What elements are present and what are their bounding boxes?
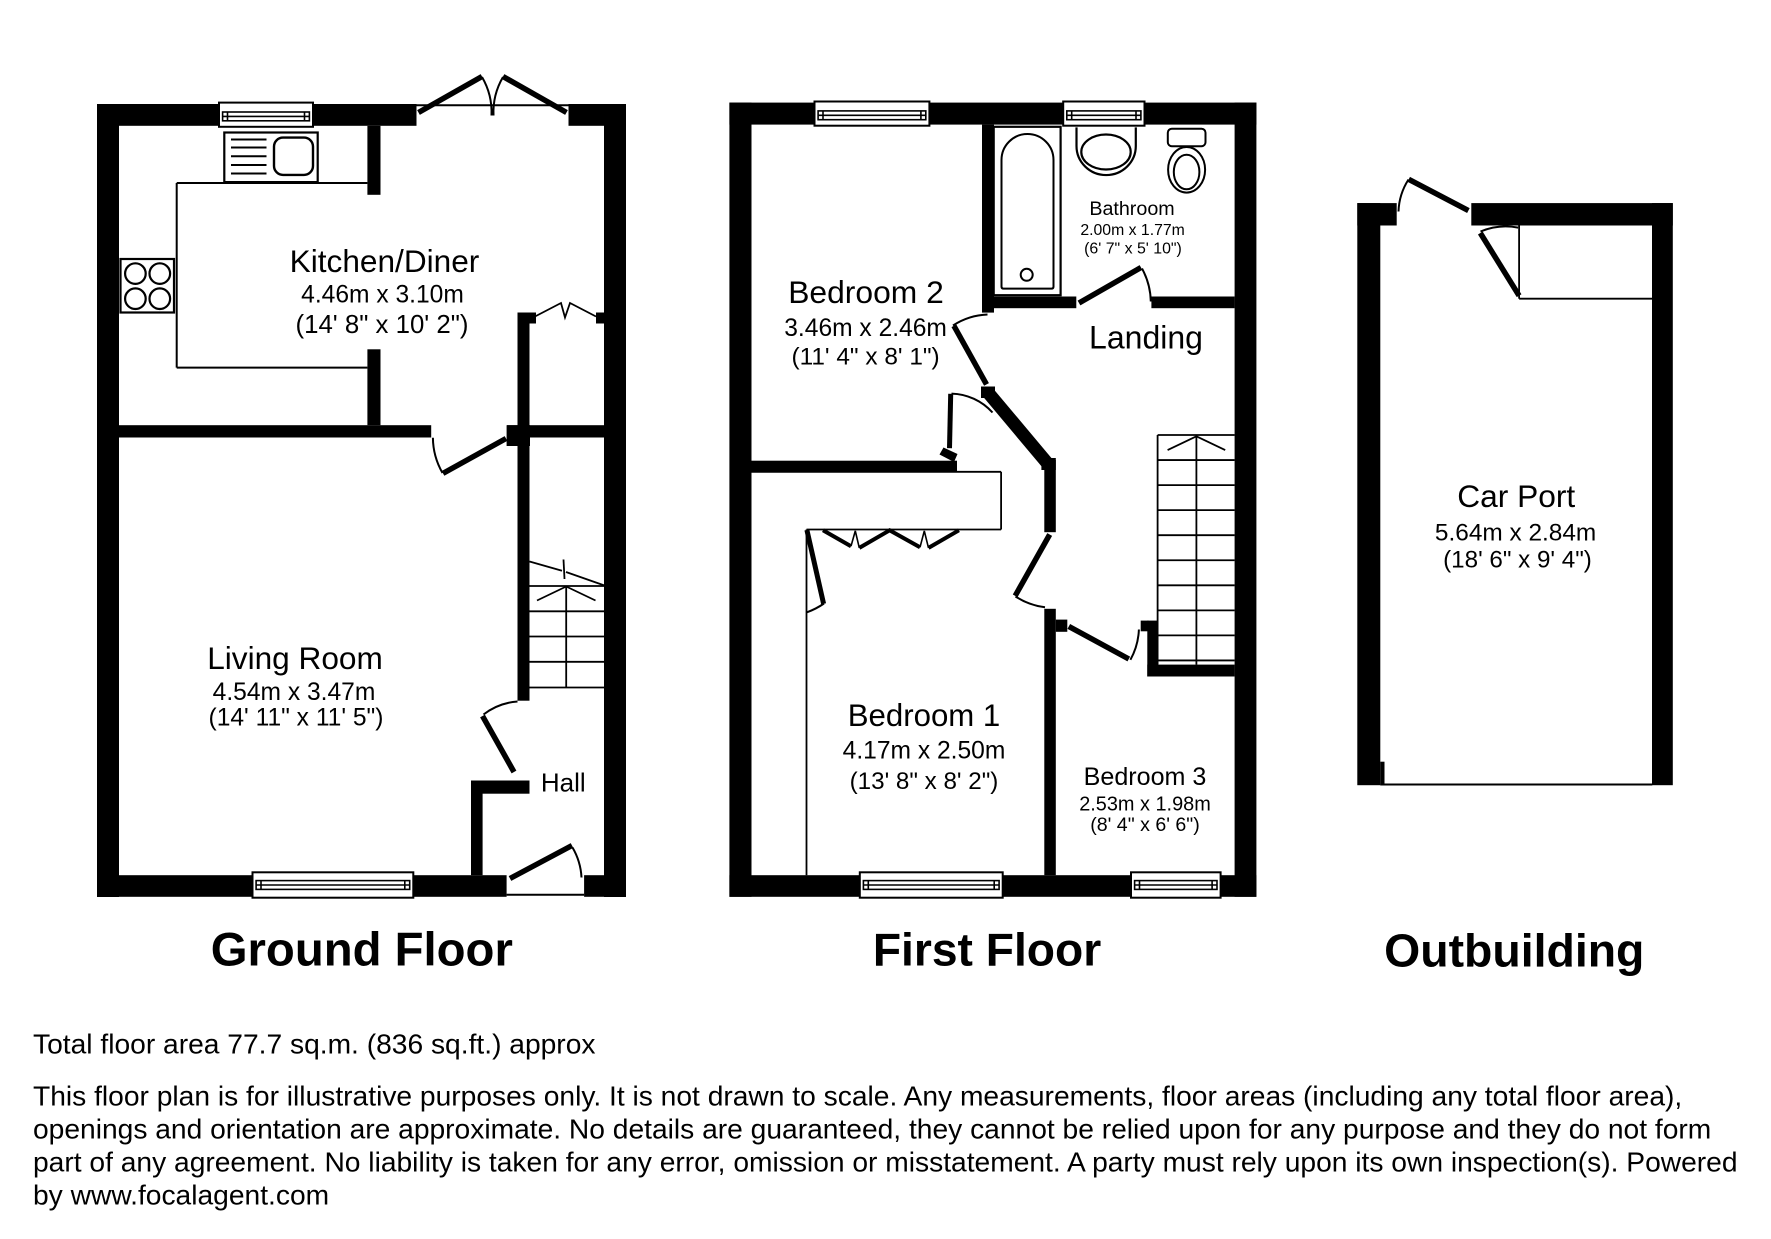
svg-text:Outbuilding: Outbuilding <box>1384 924 1644 976</box>
svg-text:Car Port: Car Port <box>1457 478 1575 514</box>
svg-text:(14' 8" x 10' 2"): (14' 8" x 10' 2") <box>296 311 469 339</box>
svg-text:5.64m x 2.84m: 5.64m x 2.84m <box>1435 520 1596 547</box>
svg-text:Kitchen/Diner: Kitchen/Diner <box>290 243 480 279</box>
svg-text:(8' 4" x 6' 6"): (8' 4" x 6' 6") <box>1090 814 1200 836</box>
svg-text:Hall: Hall <box>541 768 586 798</box>
svg-text:2.00m x 1.77m: 2.00m x 1.77m <box>1080 222 1185 239</box>
svg-text:2.53m x 1.98m: 2.53m x 1.98m <box>1079 794 1211 816</box>
svg-text:Bedroom 2: Bedroom 2 <box>788 274 944 310</box>
svg-text:4.17m x 2.50m: 4.17m x 2.50m <box>843 738 1006 765</box>
svg-text:by www.focalagent.com: by www.focalagent.com <box>33 1179 329 1211</box>
svg-text:Landing: Landing <box>1089 320 1203 356</box>
svg-text:4.46m x 3.10m: 4.46m x 3.10m <box>301 282 464 309</box>
svg-text:(18' 6" x 9' 4"): (18' 6" x 9' 4") <box>1443 547 1592 574</box>
svg-text:First Floor: First Floor <box>873 924 1101 976</box>
svg-text:Living Room: Living Room <box>207 640 383 676</box>
svg-text:openings and orientation are a: openings and orientation are approximate… <box>33 1113 1711 1145</box>
svg-text:This floor plan is for illustr: This floor plan is for illustrative purp… <box>33 1080 1682 1112</box>
svg-text:(14' 11" x 11' 5"): (14' 11" x 11' 5") <box>209 705 384 732</box>
svg-text:(13' 8" x 8' 2"): (13' 8" x 8' 2") <box>850 768 999 795</box>
svg-text:3.46m x 2.46m: 3.46m x 2.46m <box>784 315 947 342</box>
svg-text:(11' 4" x 8' 1"): (11' 4" x 8' 1") <box>791 344 939 371</box>
svg-text:part of any agreement. No liab: part of any agreement. No liability is t… <box>33 1146 1738 1178</box>
svg-text:Bedroom 3: Bedroom 3 <box>1084 763 1207 791</box>
svg-text:Ground Floor: Ground Floor <box>211 924 513 977</box>
svg-text:Total floor area 77.7 sq.m. (8: Total floor area 77.7 sq.m. (836 sq.ft.)… <box>33 1028 595 1060</box>
svg-text:Bathroom: Bathroom <box>1089 198 1174 220</box>
svg-text:(6' 7" x 5' 10"): (6' 7" x 5' 10") <box>1084 241 1182 258</box>
svg-text:4.54m x 3.47m: 4.54m x 3.47m <box>213 679 376 706</box>
svg-text:Bedroom 1: Bedroom 1 <box>848 698 1001 733</box>
